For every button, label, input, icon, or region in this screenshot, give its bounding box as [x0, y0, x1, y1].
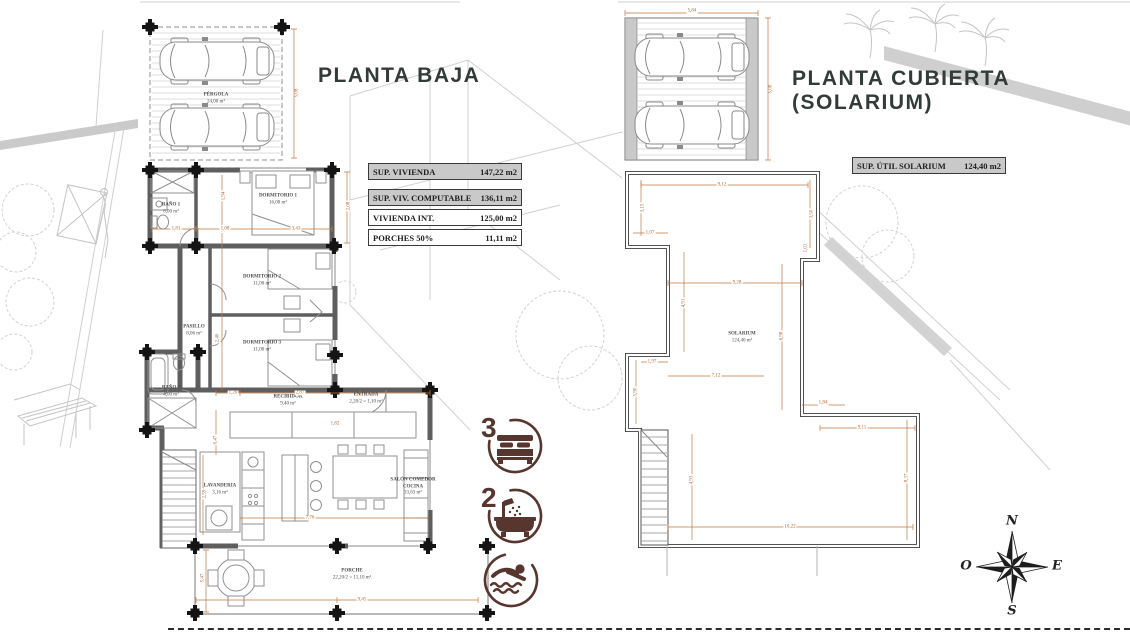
- floor-plan-ground: [139, 19, 495, 621]
- dimension-label: 1,94: [222, 191, 227, 202]
- area-label: VIVIENDA INT.: [373, 213, 434, 223]
- dimension-label: 9,28: [732, 281, 743, 286]
- room-label: ENTRADA2,20/2 = 1,10 m²: [349, 393, 382, 406]
- dimension-label: 3,15: [641, 203, 646, 214]
- dimension-label: 0,47: [214, 435, 219, 446]
- dimension-label: 1,08: [220, 227, 231, 232]
- swimmer-icon: [491, 564, 525, 592]
- room-label: BAÑO 24,00 m²: [162, 386, 180, 399]
- bedrooms-count: 3: [481, 414, 497, 442]
- dimension-label: 7,12: [711, 374, 722, 379]
- roof-floor-title: PLANTA CUBIERTA (SOLARIUM): [792, 67, 1010, 115]
- dimension-label: 1,07: [645, 231, 656, 236]
- dimension-label: 7,76: [305, 516, 316, 521]
- room-label: RECIBIDOR9,40 m²: [274, 395, 303, 408]
- compass-west-label: O: [960, 559, 971, 574]
- room-label: SOLARIUM124,40 m²: [728, 332, 756, 345]
- area-label: SUP. VIV. COMPUTABLE: [373, 193, 471, 203]
- room-label: BAÑO 16,00 m²: [162, 203, 180, 216]
- dimension-label: 9,45: [357, 598, 368, 603]
- room-label: DORMITORIO 311,00 m²: [243, 341, 281, 354]
- dimension-label: 1,81: [171, 227, 182, 232]
- floor-plan-sheet: PLANTA BAJA PLANTA CUBIERTA (SOLARIUM) S…: [0, 0, 1130, 635]
- area-value: 147,22 m2: [480, 167, 517, 177]
- room-label: DORMITORIO 116,00 m²: [259, 194, 297, 207]
- dimension-label: 1,20: [228, 391, 239, 396]
- dimension-label: 5,08: [769, 84, 774, 95]
- room-label: PASILLO8,06 m²: [183, 325, 205, 338]
- dimension-label: 3,50: [810, 209, 815, 220]
- area-value: 11,11 m2: [485, 233, 517, 243]
- bedrooms-badge: 3: [483, 414, 547, 478]
- compass-south-label: S: [1007, 604, 1016, 619]
- stairs-ground: [162, 450, 196, 548]
- solarium-outline: [627, 173, 918, 576]
- compass-north-label: N: [1006, 514, 1018, 529]
- dimension-label: 2,40: [216, 333, 221, 344]
- ground-floor-area-table: SUP. VIVIENDA147,22 m2SUP. VIV. COMPUTAB…: [368, 163, 522, 249]
- dimension-label: 1,82: [330, 422, 341, 427]
- dimension-label: 9,11: [857, 426, 868, 431]
- area-label: SUP. ÚTIL SOLARIUM: [857, 161, 946, 171]
- area-table-row: SUP. ÚTIL SOLARIUM124,40 m2: [852, 157, 1006, 174]
- area-value: 125,00 m2: [480, 213, 517, 223]
- dimension-label: 5,47: [201, 573, 206, 584]
- dimension-label: 1,01: [804, 243, 809, 254]
- area-label: PORCHES 50%: [373, 233, 433, 243]
- bed-icon: [497, 435, 533, 464]
- sideboard: [230, 412, 416, 438]
- dimension-label: 9,12: [717, 183, 728, 188]
- dimension-label: 6,98: [780, 331, 785, 342]
- solarium-area-table: SUP. ÚTIL SOLARIUM124,40 m2: [852, 157, 1006, 183]
- area-value: 124,40 m2: [964, 161, 1001, 171]
- dimension-label: 1,84: [818, 401, 829, 406]
- dimension-label: 5,90: [634, 387, 639, 398]
- ground-floor-title: PLANTA BAJA: [318, 64, 480, 88]
- bathtub-shower-icon: [494, 498, 536, 537]
- compass-rose-icon: [976, 531, 1048, 603]
- sheet-bottom-border: [168, 628, 1130, 630]
- room-label: PÉRGOLA24,00 m²: [204, 93, 229, 106]
- area-table-row: VIVIENDA INT.125,00 m2: [368, 209, 522, 226]
- area-table-row: PORCHES 50%11,11 m2: [368, 229, 522, 246]
- room-label: DORMITORIO 211,00 m²: [243, 275, 281, 288]
- compass-east-label: E: [1052, 559, 1062, 574]
- stairs-roof: [641, 430, 668, 545]
- dimension-label: 2,08: [347, 201, 352, 212]
- room-label: PORCHE22,20/2 = 11,10 m²: [333, 569, 371, 582]
- room-label: LAVANDERIA3,16 m²: [204, 484, 237, 497]
- bathrooms-badge: 2: [483, 484, 547, 548]
- dimension-label: 5,84: [687, 9, 698, 14]
- room-label: SALÓN COMEDOR COCINA33,63 m²: [384, 477, 442, 497]
- dimension-label: 2,59: [203, 489, 208, 500]
- dimension-label: 5,08: [295, 88, 300, 99]
- dimension-label: 4,91: [682, 298, 687, 309]
- dimension-label: 10,22: [783, 525, 796, 530]
- area-table-row: SUP. VIVIENDA147,22 m2: [368, 163, 522, 180]
- area-table-row: SUP. VIV. COMPUTABLE136,11 m2: [368, 189, 522, 206]
- dimension-label: 4,93: [690, 475, 695, 486]
- dimension-label: 3,43: [291, 227, 302, 232]
- dimension-label: 8,37: [905, 473, 910, 484]
- bathrooms-count: 2: [481, 484, 497, 512]
- area-label: SUP. VIVIENDA: [373, 167, 435, 177]
- pergola-right: [625, 18, 758, 160]
- area-value: 136,11 m2: [481, 193, 517, 203]
- dimension-label: 2,87: [295, 391, 306, 396]
- pool-badge: [479, 548, 543, 612]
- dimension-label: 1,97: [647, 360, 658, 365]
